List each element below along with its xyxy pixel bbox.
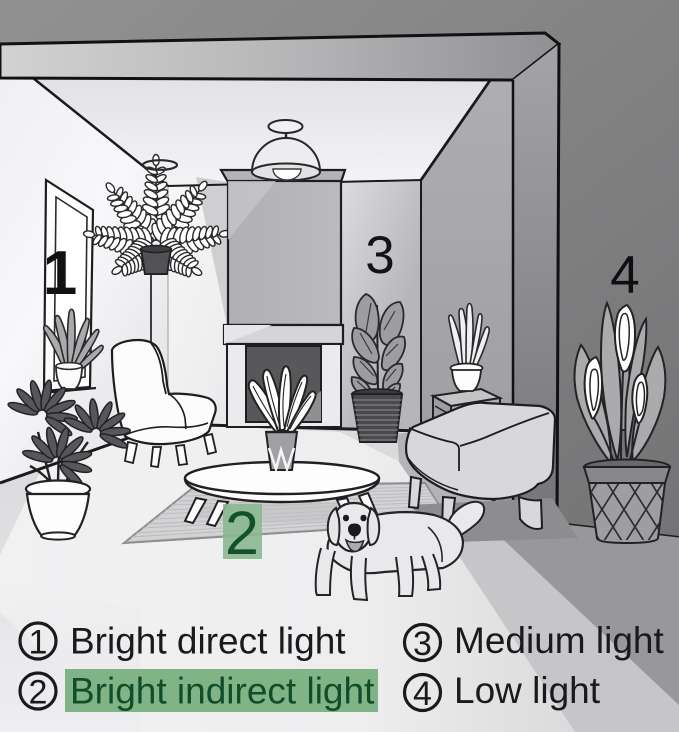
svg-text:Bright indirect light: Bright indirect light bbox=[70, 671, 375, 712]
svg-text:Medium light: Medium light bbox=[454, 620, 664, 661]
svg-text:1: 1 bbox=[29, 624, 48, 662]
svg-text:2: 2 bbox=[225, 499, 259, 567]
svg-text:3: 3 bbox=[413, 625, 432, 663]
svg-text:Low light: Low light bbox=[454, 670, 601, 711]
svg-text:4: 4 bbox=[610, 246, 639, 305]
svg-text:1: 1 bbox=[43, 239, 77, 308]
svg-text:Bright direct light: Bright direct light bbox=[70, 621, 346, 662]
svg-text:2: 2 bbox=[29, 674, 48, 712]
svg-text:3: 3 bbox=[365, 226, 394, 285]
svg-text:4: 4 bbox=[413, 675, 432, 713]
